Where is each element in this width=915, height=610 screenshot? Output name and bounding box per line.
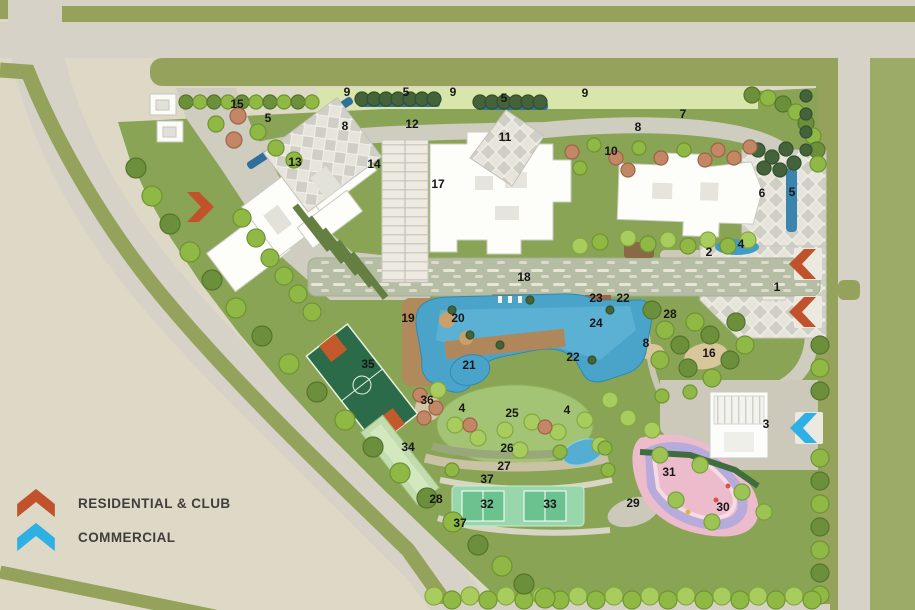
east-green-field [870,0,915,610]
tree [701,326,719,344]
tree [208,116,224,132]
map-marker-34: 34 [401,440,415,454]
tree [443,591,461,609]
tree [643,301,661,319]
map-marker-8: 8 [342,119,349,133]
map-marker-25: 25 [505,406,519,420]
tree [711,143,725,157]
map-marker-36: 36 [420,393,434,407]
tree [497,422,513,438]
north-site-verge [150,58,838,86]
tree [479,591,497,609]
map-marker-6: 6 [759,186,766,200]
map-marker-1: 1 [774,280,781,294]
tree [620,410,636,426]
tree [447,417,463,433]
tree [279,354,299,374]
tree [553,445,567,459]
north-road-median [62,6,915,23]
tree [800,108,812,120]
tree [390,463,410,483]
tree [749,587,767,605]
tree [305,95,319,109]
tree [727,151,741,165]
map-marker-4: 4 [738,237,745,251]
tree [811,495,829,513]
tree [261,249,279,267]
tree [620,230,636,246]
tree [731,591,749,609]
map-marker-30: 30 [716,500,730,514]
tree [744,87,760,103]
tree [668,492,684,508]
tree [514,574,534,594]
site-plan-canvas: 9595915578128111013141765241182322281920… [0,0,915,610]
tree [695,591,713,609]
tree [226,298,246,318]
tree [535,588,555,608]
tree [760,90,776,106]
tree [263,95,277,109]
tree [470,430,486,446]
tree [703,369,721,387]
map-marker-3: 3 [763,417,770,431]
tree [779,142,793,156]
tree [250,124,266,140]
tree [268,140,284,156]
tree [660,232,676,248]
map-marker-5: 5 [501,91,508,105]
tree [713,587,731,605]
tree [686,313,704,331]
tree [623,591,641,609]
north-road [0,22,915,58]
tree [810,156,826,172]
tree [800,90,812,102]
map-marker-11: 11 [499,130,512,144]
tree [773,163,787,177]
tree [734,484,750,500]
tree [180,242,200,262]
map-marker-10: 10 [604,144,618,158]
parking-structure-12 [382,140,428,282]
tree [601,463,615,477]
map-marker-4: 4 [459,401,466,415]
tree [587,138,601,152]
map-marker-8: 8 [643,336,650,350]
tree [572,238,588,254]
tree [698,153,712,167]
tree [277,95,291,109]
residential-chevron-up-icon [14,487,58,519]
tree [692,457,708,473]
tree [720,238,736,254]
map-marker-5: 5 [789,185,796,199]
tree [654,151,668,165]
tree [677,143,691,157]
legend-label-residential: RESIDENTIAL & CLUB [78,496,231,511]
tree [533,95,547,109]
tree [679,359,697,377]
map-marker-31: 31 [662,465,676,479]
map-marker-14: 14 [367,157,381,171]
legend-item-commercial: COMMERCIAL [14,522,231,552]
tree [811,382,829,400]
commercial-chevron-up-icon [14,521,58,553]
tree [142,186,162,206]
tree [592,234,608,250]
tree [303,303,321,321]
tree [417,411,431,425]
map-marker-7: 7 [680,107,687,121]
map-marker-32: 32 [480,497,494,511]
tree [226,132,242,148]
map-marker-26: 26 [500,441,514,455]
map-marker-15: 15 [230,97,244,111]
tree [587,591,605,609]
map-marker-33: 33 [543,497,557,511]
tree [252,326,272,346]
tree [811,359,829,377]
tree [640,236,656,252]
legend-item-residential: RESIDENTIAL & CLUB [14,488,231,518]
map-marker-13: 13 [288,155,302,169]
tree [785,587,803,605]
tree [671,336,689,354]
map-marker-8: 8 [635,120,642,134]
tree [659,591,677,609]
map-marker-18: 18 [517,270,531,284]
tree [756,504,772,520]
tree [677,587,695,605]
tree [683,385,697,399]
tree [291,95,305,109]
tree [736,336,754,354]
tree [335,410,355,430]
tree [811,518,829,536]
tree [757,161,771,175]
tree [427,92,441,106]
tree [605,587,623,605]
tree [743,140,757,154]
tree [598,441,612,455]
tree [160,214,180,234]
tree [652,447,668,463]
tree [680,238,696,254]
map-marker-17: 17 [431,177,445,191]
tree [126,158,146,178]
tree [307,382,327,402]
tree [565,145,579,159]
map-marker-20: 20 [451,311,465,325]
map-marker-21: 21 [462,358,476,372]
tree [767,591,785,609]
map-marker-12: 12 [405,117,419,131]
tree [577,412,593,428]
tree [800,126,812,138]
tree [588,356,596,364]
map-marker-5: 5 [265,111,272,125]
tree [468,535,488,555]
tree [275,267,293,285]
map-marker-37: 37 [480,472,494,486]
map-marker-27: 27 [497,459,511,473]
tree [606,306,614,314]
tree [202,270,222,290]
tree [569,587,587,605]
map-marker-19: 19 [401,311,415,325]
tree [445,463,459,477]
tree [179,95,193,109]
tree [461,587,479,605]
tree [207,95,221,109]
tree [538,420,552,434]
tree [289,285,307,303]
map-marker-28: 28 [429,492,443,506]
tree [721,351,739,369]
legend-label-commercial: COMMERCIAL [78,530,176,545]
tree [247,229,265,247]
tree [656,321,674,339]
map-marker-9: 9 [450,85,457,99]
commercial-building-3 [710,392,768,458]
map-marker-9: 9 [344,85,351,99]
tree [655,389,669,403]
tree [644,422,660,438]
map-marker-29: 29 [626,496,640,510]
tree [811,336,829,354]
tree [641,587,659,605]
tree [727,313,745,331]
map-marker-22: 22 [616,291,630,305]
map-marker-22: 22 [566,350,580,364]
east-water-channel-5 [786,168,797,232]
tree [811,449,829,467]
map-marker-37: 37 [453,516,467,530]
tree [621,163,635,177]
legend: RESIDENTIAL & CLUB COMMERCIAL [14,488,231,552]
map-marker-4: 4 [564,403,571,417]
tree [602,392,618,408]
tree [492,556,512,576]
map-marker-35: 35 [361,357,375,371]
map-marker-16: 16 [702,346,716,360]
tree [233,209,251,227]
map-marker-5: 5 [403,85,410,99]
tree [811,541,829,559]
tree [363,437,383,457]
tree [497,587,515,605]
tree [193,95,207,109]
tree [651,351,669,369]
tree [811,564,829,582]
tree [811,472,829,490]
east-entry-median-island [838,280,860,300]
tree [466,331,474,339]
tree [512,442,528,458]
tree [496,341,504,349]
tree [800,144,812,156]
map-marker-2: 2 [706,245,713,259]
tree [425,587,443,605]
map-marker-23: 23 [589,291,603,305]
map-marker-24: 24 [589,316,603,330]
tree [803,591,821,609]
tree [526,296,534,304]
tree [463,418,477,432]
tree [249,95,263,109]
tree [787,156,801,170]
map-marker-28: 28 [663,307,677,321]
tennis-courts [452,486,584,526]
tree [632,141,646,155]
map-marker-9: 9 [582,86,589,100]
tree [704,514,720,530]
east-road [838,56,870,610]
tree [573,161,587,175]
